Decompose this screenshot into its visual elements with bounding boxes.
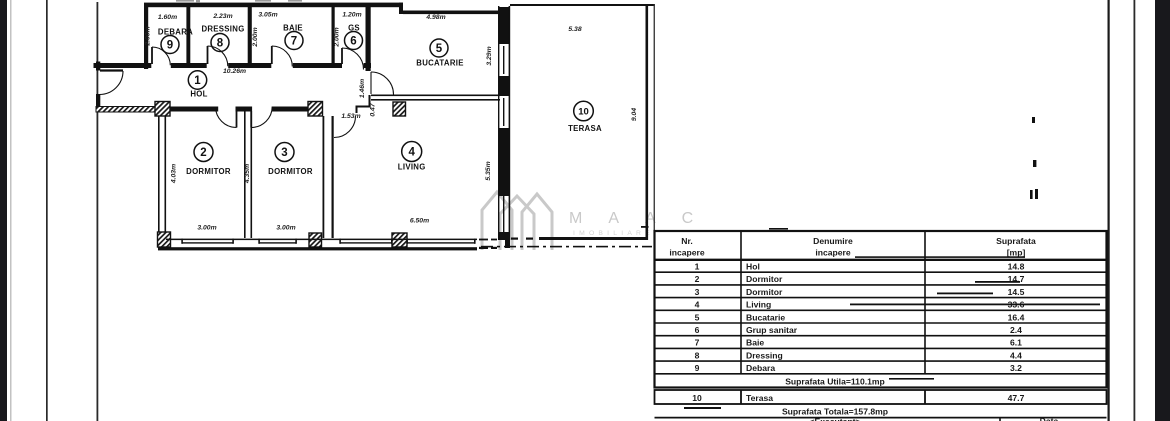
svg-text:7: 7 (291, 36, 297, 48)
svg-text:7: 7 (695, 338, 700, 348)
svg-text:5: 5 (695, 312, 700, 322)
svg-text:16.4: 16.4 (1008, 312, 1025, 322)
svg-text:Dormitor: Dormitor (746, 287, 783, 297)
svg-text:IMOBILIARE: IMOBILIARE (573, 230, 654, 237)
svg-text:4.98m: 4.98m (425, 14, 445, 21)
svg-text:Bucatarie: Bucatarie (746, 312, 785, 322)
svg-text:Suprafata Totala=157.8mp: Suprafata Totala=157.8mp (782, 407, 888, 417)
svg-text:BUCATARIE: BUCATARIE (416, 59, 463, 68)
svg-text:5.35m: 5.35m (485, 161, 492, 180)
svg-text:9: 9 (167, 40, 173, 52)
svg-text:4: 4 (695, 300, 700, 310)
svg-text:3.00m: 3.00m (276, 224, 295, 231)
svg-text:47.7: 47.7 (1008, 393, 1025, 403)
svg-text:Baie: Baie (746, 338, 764, 348)
svg-text:14.5: 14.5 (1008, 287, 1025, 297)
svg-text:Grup sanitar: Grup sanitar (746, 325, 798, 335)
svg-text:1.46m: 1.46m (359, 79, 366, 98)
svg-text:2.00m: 2.00m (252, 27, 259, 47)
svg-text:2.00m: 2.00m (145, 26, 152, 46)
svg-text:1: 1 (695, 262, 700, 272)
svg-text:Terasa: Terasa (746, 393, 773, 403)
svg-text:10.26m: 10.26m (223, 68, 246, 75)
svg-text:9: 9 (695, 363, 700, 373)
svg-text:4.03m: 4.03m (170, 164, 177, 184)
svg-text:9.04: 9.04 (631, 108, 638, 121)
svg-text:5: 5 (436, 43, 443, 55)
svg-text:0.47: 0.47 (370, 102, 377, 116)
svg-text:Dormitor: Dormitor (746, 274, 783, 284)
svg-text:2.00m: 2.00m (334, 27, 341, 47)
svg-text:BAIE: BAIE (283, 24, 303, 33)
svg-text:2.23m: 2.23m (212, 13, 232, 20)
svg-text:3.2: 3.2 (1010, 363, 1022, 373)
svg-text:DEBARA: DEBARA (158, 28, 193, 37)
svg-text:6: 6 (350, 36, 356, 48)
svg-text:Denumire: Denumire (813, 236, 853, 246)
svg-text:[mp]: [mp] (1007, 248, 1026, 258)
svg-text:2.4: 2.4 (1010, 325, 1022, 335)
svg-text:HOL: HOL (190, 89, 207, 98)
svg-text:4.4: 4.4 (1010, 350, 1022, 360)
svg-text:incapere: incapere (815, 248, 851, 258)
svg-text:8: 8 (695, 350, 700, 360)
svg-text:Hol: Hol (746, 262, 760, 272)
svg-text:Data: Data (1040, 416, 1059, 421)
svg-text:LIVING: LIVING (398, 162, 426, 171)
svg-text:Suprafata: Suprafata (996, 236, 1036, 246)
svg-text:2: 2 (200, 147, 206, 159)
svg-text:3.00m: 3.00m (197, 224, 216, 231)
svg-text:3: 3 (695, 287, 700, 297)
svg-text:1: 1 (194, 75, 201, 87)
svg-text:3.29m: 3.29m (486, 46, 493, 65)
svg-text:4: 4 (408, 147, 415, 159)
svg-text:Nr.: Nr. (681, 236, 692, 246)
svg-text:TERASA: TERASA (568, 124, 602, 133)
svg-text:3: 3 (281, 147, 287, 159)
svg-text:3.05m: 3.05m (258, 12, 277, 19)
svg-text:DRESSING: DRESSING (201, 25, 244, 34)
svg-text:8: 8 (217, 38, 224, 50)
svg-text:5.38: 5.38 (568, 26, 581, 33)
svg-text:1.53m: 1.53m (341, 113, 360, 120)
svg-text:DORMITOR: DORMITOR (186, 167, 231, 176)
svg-text:Living: Living (746, 300, 771, 310)
svg-text:6: 6 (695, 325, 700, 335)
svg-text:14.8: 14.8 (1008, 262, 1025, 272)
svg-text:incapere: incapere (669, 248, 705, 258)
svg-text:GS: GS (348, 24, 360, 33)
svg-text:Debara: Debara (746, 363, 775, 373)
svg-text:Dressing: Dressing (746, 350, 783, 360)
svg-text:4.35m: 4.35m (244, 164, 251, 184)
svg-text:MAAC: MAAC (569, 210, 719, 227)
svg-text:10: 10 (692, 393, 702, 403)
svg-text:<Executant>: <Executant> (809, 417, 860, 421)
svg-text:10: 10 (578, 106, 589, 117)
svg-text:6.50m: 6.50m (410, 218, 429, 225)
svg-text:1.20m: 1.20m (342, 12, 361, 19)
svg-text:1.60m: 1.60m (158, 14, 177, 21)
svg-text:Suprafata Utila=110.1mp: Suprafata Utila=110.1mp (785, 377, 885, 387)
svg-text:DORMITOR: DORMITOR (268, 167, 313, 176)
svg-text:6.1: 6.1 (1010, 338, 1022, 348)
svg-text:2: 2 (695, 274, 700, 284)
